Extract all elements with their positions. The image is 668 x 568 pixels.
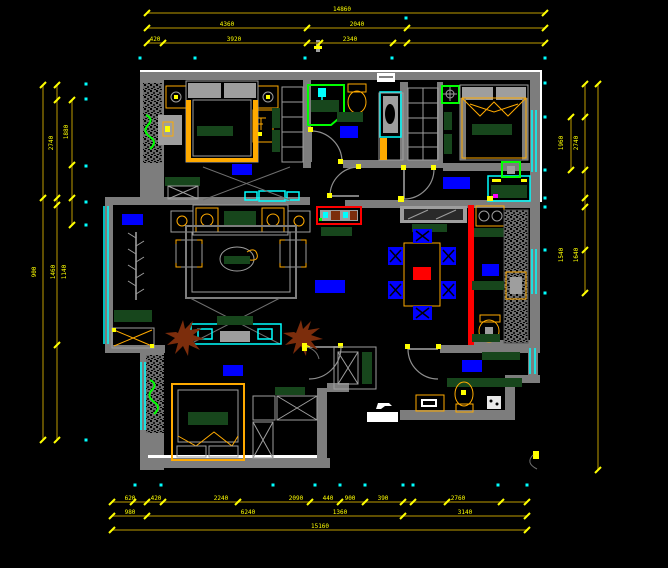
dim-text: 2740 (573, 135, 580, 150)
dim-text: 2340 (343, 36, 358, 43)
extension-dot (364, 484, 367, 487)
bed-double (186, 81, 258, 162)
hall-bathroom-bottom (302, 343, 539, 469)
armchair-right (280, 240, 306, 267)
label-balcony (122, 214, 143, 225)
dim-text: 3920 (227, 36, 242, 43)
extension-dot (85, 83, 88, 86)
extension-dot (85, 201, 88, 204)
plant-left (165, 320, 205, 356)
coat-tree (128, 232, 144, 300)
extension-dot (139, 57, 142, 60)
side-table-right (288, 211, 310, 232)
console-aquarium (317, 207, 361, 224)
extension-dot (544, 206, 547, 209)
extension-dot (85, 224, 88, 227)
shoe-cabinet (400, 206, 467, 232)
bathroom-top (308, 84, 403, 160)
wall-lamp-2 (530, 451, 539, 469)
extension-dot (497, 484, 500, 487)
dim-text: 2740 (48, 135, 55, 150)
magenta-mark (493, 194, 498, 198)
dim-text: 1960 (558, 135, 565, 150)
bed-pillow (472, 124, 512, 135)
label-hall-bathroom (462, 360, 482, 372)
extension-dot (544, 57, 547, 60)
door-corridor-bedroom1 (327, 164, 361, 198)
dim-text: 390 (378, 495, 389, 502)
dim-text: 620 (125, 495, 136, 502)
shower-head (318, 88, 326, 97)
extension-dot (272, 484, 275, 487)
label-kitchen (482, 264, 499, 276)
label-bedroom-top-right (443, 177, 470, 189)
dining-table (404, 243, 440, 306)
dim-text: 2090 (289, 495, 304, 502)
extension-dot (304, 57, 307, 60)
extension-dot (194, 57, 197, 60)
dim-text: 1360 (333, 509, 348, 516)
label-bedroom-bottom (223, 365, 243, 376)
toilet-top (348, 84, 366, 113)
vanity-bottom (416, 395, 444, 411)
coffee-table-flowers (220, 247, 257, 271)
balcony (112, 232, 154, 348)
dim-text: 1640 (573, 247, 580, 262)
label-bathroom-top (340, 126, 358, 138)
bedroom-bottom (149, 380, 317, 460)
extension-dot (314, 484, 317, 487)
dim-text: 2240 (214, 495, 229, 502)
bed-pillow (188, 412, 228, 425)
bed-canopy (460, 85, 528, 160)
door-bathroom-bottom (405, 344, 441, 379)
washbasin (380, 92, 401, 137)
ceiling-fan-icon (442, 86, 459, 103)
small-fixture (487, 396, 501, 409)
armchair-left (176, 240, 202, 267)
dim-text: 1460 (50, 264, 57, 279)
side-table-left (171, 211, 193, 232)
balcony-bench (114, 310, 152, 322)
extension-dot (405, 17, 408, 20)
wardrobe-bottom (253, 387, 317, 458)
extension-dot (134, 484, 137, 487)
dim-text: 420 (151, 495, 162, 502)
label-bedroom-top-left (232, 164, 252, 175)
dim-text: 1140 (61, 264, 68, 279)
door-bathroom-top (308, 127, 343, 164)
red-partition (468, 205, 474, 345)
extension-dot (544, 197, 547, 200)
nightstand-left (166, 86, 186, 108)
dim-text: 1880 (63, 124, 70, 139)
extension-dot (85, 439, 88, 442)
bed-double-bottom (172, 384, 244, 460)
extension-dot (544, 169, 547, 172)
dim-text: 900 (345, 495, 356, 502)
extension-dot (544, 292, 547, 295)
dim-text: 14860 (333, 6, 351, 13)
extension-dot (391, 57, 394, 60)
extension-dot (85, 98, 88, 101)
door-dining (401, 165, 436, 199)
extension-dot (85, 165, 88, 168)
dim-text: 980 (125, 509, 136, 516)
cad-canvas[interactable]: 1486043602040420392023406204202240209044… (0, 0, 668, 568)
dim-text: 3140 (458, 509, 473, 516)
tv-cabinet (191, 316, 281, 344)
dim-text: 15160 (311, 523, 329, 530)
extension-dot (160, 484, 163, 487)
extension-dot (339, 484, 342, 487)
extension-dot (544, 116, 547, 119)
faucet-icon (376, 403, 392, 409)
kitchen-stove (476, 206, 504, 226)
extension-dot (526, 484, 529, 487)
dim-text: 4360 (220, 21, 235, 28)
nightstand-right (258, 86, 278, 108)
dim-text: 1540 (558, 247, 565, 262)
bench-ottoman (165, 177, 200, 199)
bed-pillow (197, 126, 233, 136)
tv (217, 316, 253, 325)
extension-dot (412, 484, 415, 487)
dim-text: 440 (323, 495, 334, 502)
extension-dot (402, 484, 405, 487)
extension-dot (544, 82, 547, 85)
label-living-room (315, 280, 345, 293)
door-sill (367, 412, 398, 422)
bedroom-top-left (145, 81, 303, 201)
living-room (165, 205, 323, 356)
dim-text: 2760 (451, 495, 466, 502)
closet-shelves (282, 87, 303, 162)
dim-text: 420 (150, 36, 161, 43)
extension-dot (544, 249, 547, 252)
dim-text: 6240 (241, 509, 256, 516)
sofa (193, 205, 288, 235)
floor-plan-drawing: 1486043602040420392023406204202240209044… (0, 0, 668, 568)
closet-top-right (408, 88, 452, 160)
dim-text: 2040 (350, 21, 365, 28)
dresser-left (158, 115, 182, 145)
kitchen-counter-hatch (504, 210, 528, 343)
dim-text: 900 (31, 266, 38, 277)
